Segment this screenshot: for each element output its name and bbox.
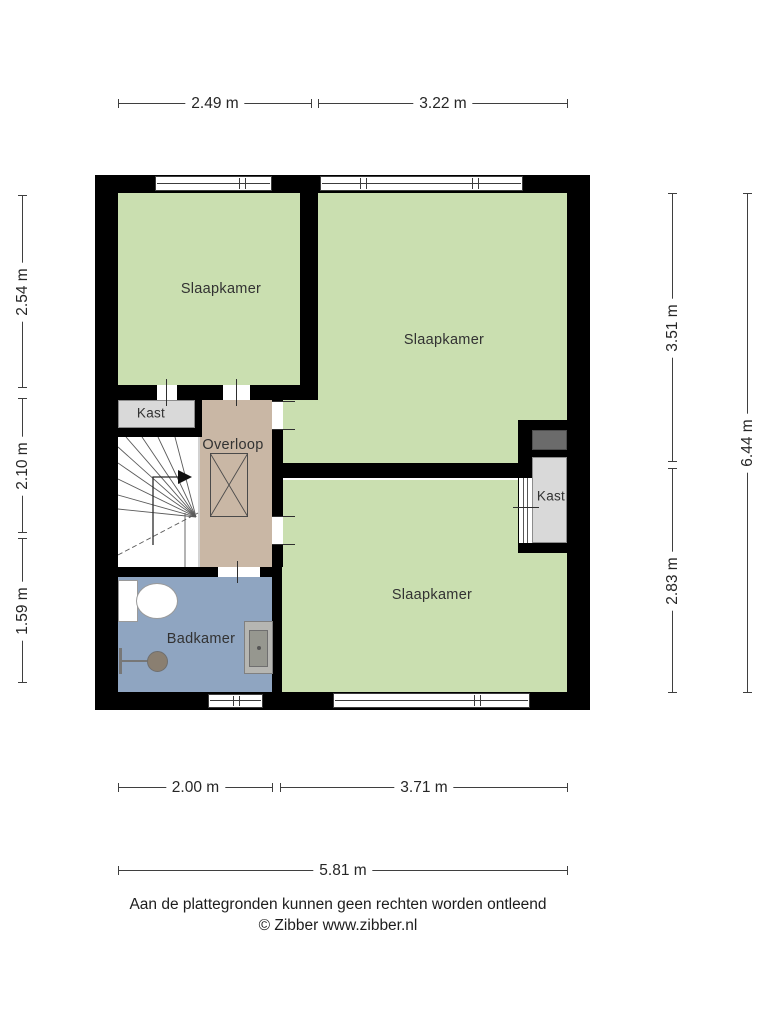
dim-tick <box>18 538 27 539</box>
window-mullion <box>245 178 246 189</box>
toilet-bowl-symbol <box>136 583 178 619</box>
window-frame-line <box>322 183 521 184</box>
dim-tick <box>311 99 312 108</box>
floorplan-page: Slaapkamer Slaapkamer Slaapkamer Kast Ka… <box>0 0 768 1024</box>
sink-drain-symbol <box>257 646 261 650</box>
dim-tick <box>668 193 677 194</box>
dim-label: 5.81 m <box>313 862 372 880</box>
dim-tick <box>18 532 27 533</box>
footer-disclaimer: Aan de plattegronden kunnen geen rechten… <box>0 896 676 914</box>
room-label-bedroom-bottom: Slaapkamer <box>392 587 472 603</box>
dim-tick <box>18 398 27 399</box>
room-label-closet-right: Kast <box>537 489 565 504</box>
dim-right-outer: 6.44 m <box>747 193 748 693</box>
dim-bottom-2: 3.71 m <box>280 787 568 788</box>
door-landing-to-bedroom3 <box>272 517 283 545</box>
window-mullion <box>239 178 240 189</box>
dim-tick <box>18 195 27 196</box>
dim-tick <box>18 387 27 388</box>
dim-label: 3.71 m <box>394 779 453 797</box>
window-bedroom-bottom <box>333 693 530 708</box>
door-landing-to-bathroom <box>218 567 260 577</box>
toilet-cistern-symbol <box>118 580 138 622</box>
window-mullion <box>472 178 473 189</box>
door-jamb <box>272 429 295 430</box>
stairs-symbol <box>118 437 200 567</box>
dim-label: 3.51 m <box>664 298 682 357</box>
room-label-closet-left: Kast <box>137 406 165 421</box>
duct-block <box>532 430 567 450</box>
dim-tick <box>280 783 281 792</box>
footer-credit: © Zibber www.zibber.nl <box>0 917 676 935</box>
wall-under-closet-left <box>118 428 195 437</box>
wall-left <box>95 175 118 710</box>
door-bedroom1-to-closet <box>157 385 177 400</box>
dim-left-1: 2.54 m <box>22 195 23 388</box>
window-mullion <box>474 695 475 706</box>
landing-hatch-symbol <box>210 453 248 517</box>
dim-tick <box>668 692 677 693</box>
wall-right <box>567 175 590 710</box>
window-bathroom <box>208 694 263 708</box>
door-jamb <box>272 516 295 517</box>
dim-left-2: 2.10 m <box>22 398 23 533</box>
dim-tick <box>567 866 568 875</box>
dim-right-inner-1: 3.51 m <box>672 193 673 462</box>
sliding-door-panel <box>527 478 528 543</box>
room-label-bedroom-top-left: Slaapkamer <box>181 281 261 297</box>
wall-bathroom-east <box>272 567 282 692</box>
dim-tick <box>18 682 27 683</box>
wall-bedroom1-south <box>95 385 318 400</box>
dim-tick <box>567 99 568 108</box>
dim-label: 6.44 m <box>739 413 757 472</box>
dim-tick <box>272 783 273 792</box>
dim-tick <box>118 99 119 108</box>
wall-between-right-bedrooms <box>272 463 530 478</box>
dim-tick <box>668 468 677 469</box>
dim-tick <box>668 461 677 462</box>
door-landing-to-bedroom2 <box>272 402 283 430</box>
window-mullion <box>478 178 479 189</box>
dim-label: 2.49 m <box>185 95 244 113</box>
sliding-door-panel <box>523 478 524 543</box>
door-jamb <box>236 379 237 406</box>
window-frame-line <box>157 183 270 184</box>
dim-tick <box>118 866 119 875</box>
window-bedroom-top-left <box>155 176 272 191</box>
dim-right-inner-2: 2.83 m <box>672 468 673 693</box>
stairs-direction-arrow-icon <box>153 470 192 545</box>
window-mullion <box>239 696 240 706</box>
dim-tick <box>567 783 568 792</box>
dim-label: 2.54 m <box>14 262 32 321</box>
dim-bottom-total: 5.81 m <box>118 870 568 871</box>
dim-label: 1.59 m <box>14 581 32 640</box>
sliding-door-closet-right <box>519 478 532 543</box>
dim-label: 2.10 m <box>14 436 32 495</box>
dim-label: 2.00 m <box>166 779 225 797</box>
dim-tick <box>743 692 752 693</box>
door-jamb <box>272 544 295 545</box>
dim-bottom-1: 2.00 m <box>118 787 273 788</box>
dim-tick <box>318 99 319 108</box>
door-jamb <box>513 507 539 508</box>
wall-between-top-bedrooms <box>300 175 318 400</box>
window-mullion <box>360 178 361 189</box>
door-jamb <box>166 379 167 406</box>
room-label-bedroom-top-right: Slaapkamer <box>404 332 484 348</box>
window-bedroom-top-right <box>320 176 523 191</box>
dim-top-2: 3.22 m <box>318 103 568 104</box>
dim-left-3: 1.59 m <box>22 538 23 683</box>
room-label-landing: Overloop <box>202 437 263 453</box>
dim-label: 2.83 m <box>664 551 682 610</box>
window-mullion <box>366 178 367 189</box>
shower-head-symbol <box>147 651 168 672</box>
window-frame-line <box>335 700 528 701</box>
window-mullion <box>480 695 481 706</box>
window-frame-line <box>210 700 261 701</box>
dim-tick <box>118 783 119 792</box>
dim-top-1: 2.49 m <box>118 103 312 104</box>
door-jamb <box>272 401 295 402</box>
wall-closet-left-side <box>195 394 202 437</box>
door-jamb <box>237 561 238 583</box>
dim-label: 3.22 m <box>413 95 472 113</box>
window-mullion <box>233 696 234 706</box>
shower-arm-symbol <box>122 660 148 662</box>
room-label-bathroom: Badkamer <box>167 631 236 647</box>
dim-tick <box>743 193 752 194</box>
